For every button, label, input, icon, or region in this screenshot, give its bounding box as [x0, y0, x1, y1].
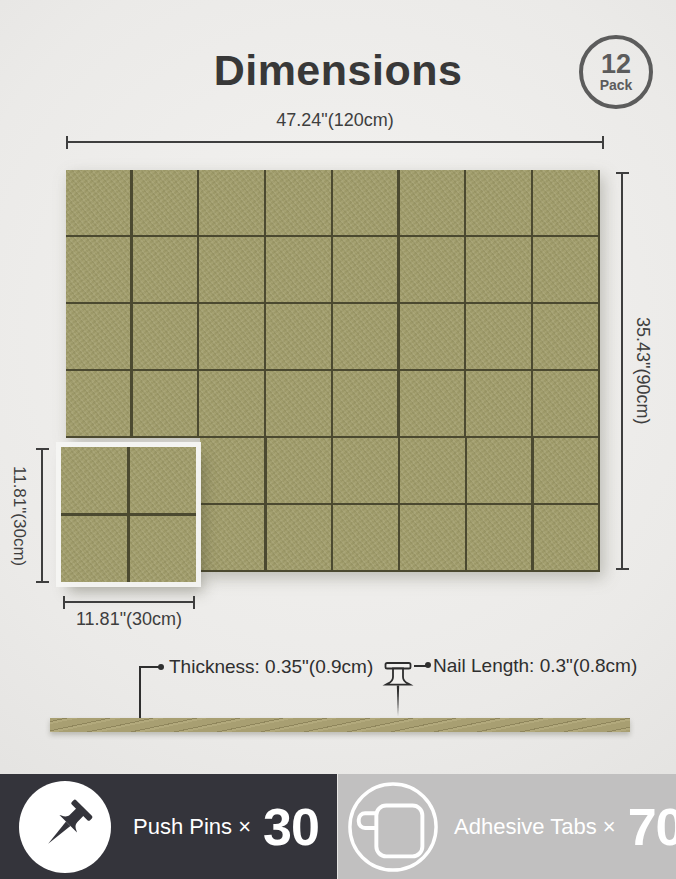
nail-leader-dot — [425, 662, 431, 668]
push-pin-icon-circle — [19, 781, 111, 873]
nail-length-label: Nail Length: 0.3"(0.8cm) — [433, 655, 637, 677]
thickness-label: Thickness: 0.35"(0.9cm) — [169, 656, 373, 678]
board-height-dimension-line — [621, 172, 623, 570]
thickness-leader-vertical — [139, 667, 141, 718]
detached-tile — [61, 447, 196, 582]
pack-count-text: Pack — [600, 78, 633, 92]
dimensions-infographic: Dimensions 12 Pack 47.24"(120cm) 35.43"(… — [0, 0, 676, 879]
pack-count-number: 12 — [601, 52, 631, 78]
felt-board-upper — [66, 170, 600, 438]
board-side-view-strip — [50, 718, 630, 732]
push-pin-outline-icon — [382, 660, 414, 722]
page-title: Dimensions — [0, 46, 676, 95]
adhesive-tabs-panel: Adhesive Tabs × 70 — [338, 774, 676, 879]
board-width-label: 47.24"(120cm) — [66, 110, 604, 131]
adhesive-tabs-count: 70 — [628, 797, 676, 857]
adhesive-tab-icon — [346, 780, 440, 874]
push-pins-count: 30 — [263, 797, 319, 857]
pack-count-badge: 12 Pack — [579, 35, 653, 109]
felt-board-group — [0, 0, 676, 879]
push-pins-panel: Push Pins × 30 — [0, 774, 337, 879]
tile-height-dimension-line — [41, 448, 43, 583]
tile-height-label: 11.81"(30cm) — [9, 440, 29, 592]
tile-width-label: 11.81"(30cm) — [39, 609, 219, 630]
board-width-dimension-line — [66, 141, 604, 143]
tile-width-dimension-line — [63, 601, 195, 603]
push-pin-icon — [32, 793, 98, 859]
thickness-leader-horizontal — [139, 666, 161, 668]
adhesive-tabs-label: Adhesive Tabs × — [454, 814, 616, 840]
push-pins-label: Push Pins × — [133, 814, 251, 840]
felt-board-lower — [200, 438, 600, 572]
board-height-label: 35.43"(90cm) — [632, 172, 653, 570]
